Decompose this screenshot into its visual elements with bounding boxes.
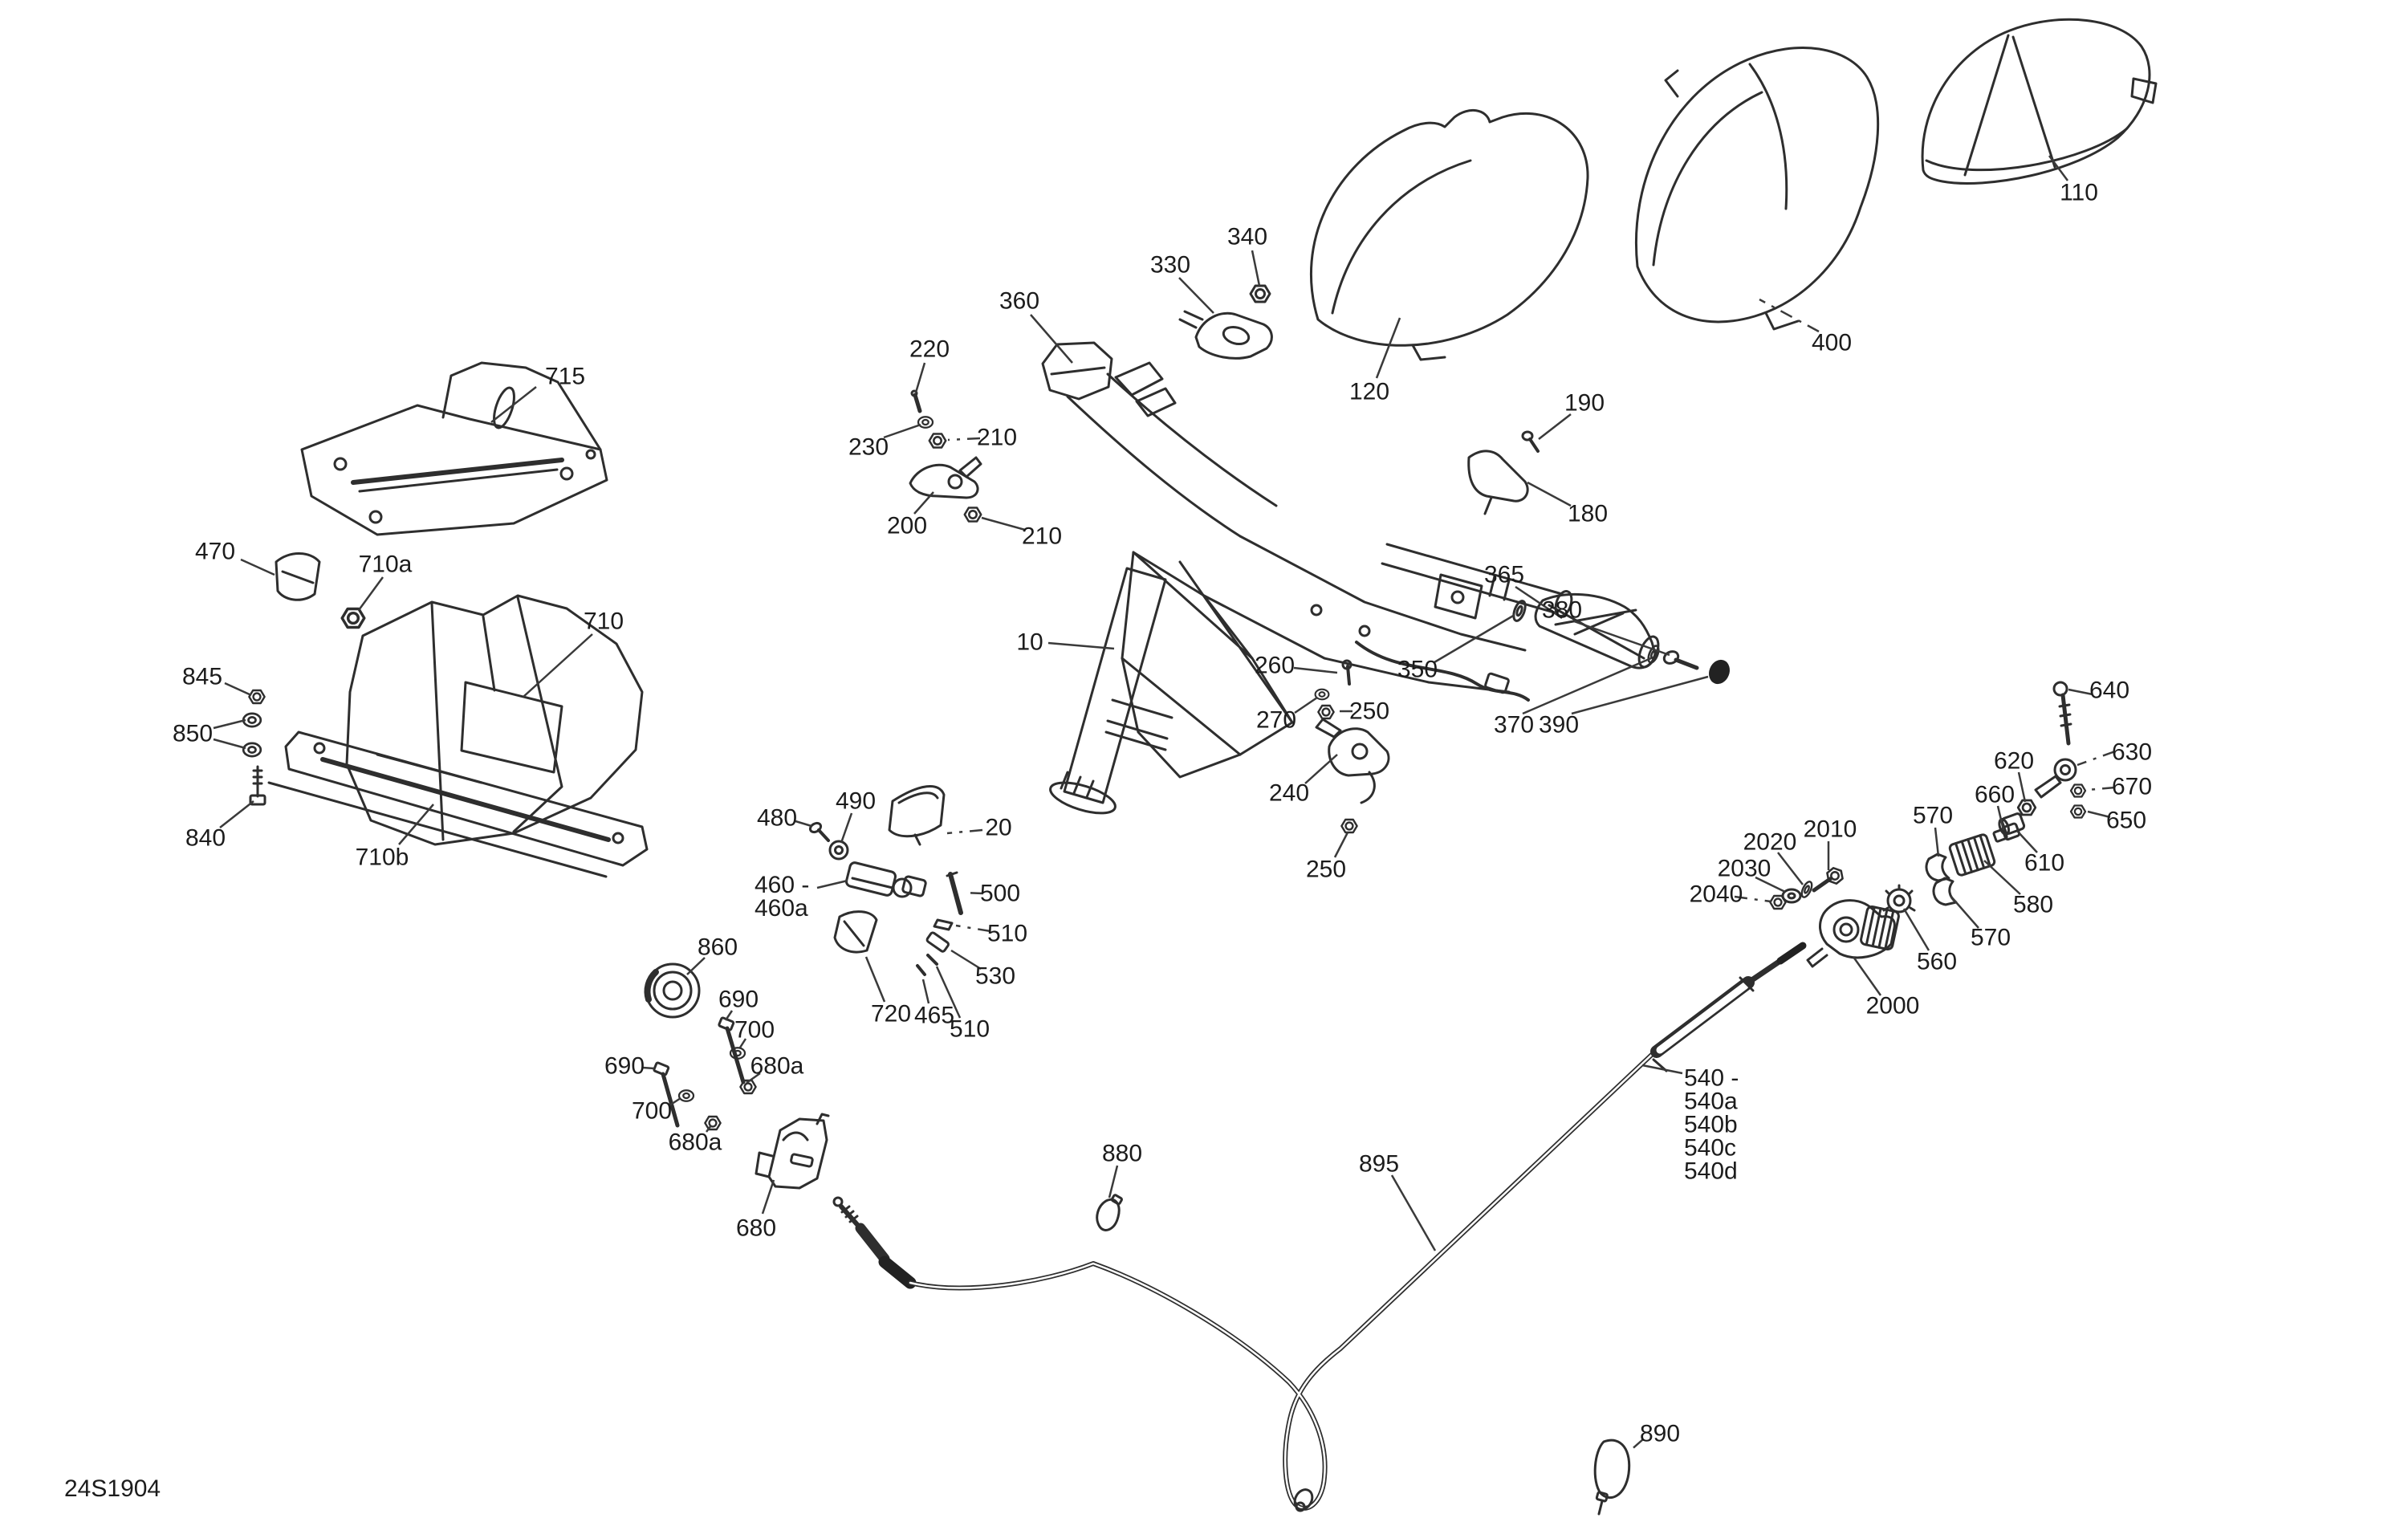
part-callout-710b: 710b: [356, 845, 409, 869]
leader-line-720: [866, 957, 885, 1002]
part-callout-10: 10: [1016, 630, 1043, 653]
part-callout-370: 370: [1494, 713, 1534, 736]
part-callout-670: 670: [2112, 775, 2152, 798]
leader-line-370: [1523, 658, 1651, 714]
throttle-block-sketch: [808, 787, 961, 975]
leader-line-670: [2088, 787, 2115, 790]
part-callout-2020: 2020: [1743, 830, 1797, 853]
leader-line-2000: [1853, 957, 1881, 995]
part-callout-2040: 2040: [1690, 882, 1743, 905]
leader-line-2020: [1778, 853, 1803, 885]
leader-line-250-b: [1335, 832, 1348, 857]
part-callout-560: 560: [1917, 950, 1957, 973]
part-callout-250-a: 250: [1349, 699, 1389, 722]
part-callout-630: 630: [2112, 740, 2152, 763]
cable-ties-sketch: [1097, 1194, 1629, 1514]
leader-line-210-b: [982, 518, 1025, 530]
leader-line-850: [214, 739, 246, 748]
parts-line-art: [243, 19, 2156, 1514]
console-710-sketch: [269, 596, 647, 877]
part-callout-710: 710: [584, 609, 624, 633]
leader-line-240: [1305, 755, 1337, 783]
part-callout-490: 490: [836, 789, 876, 812]
part-callout-2010: 2010: [1804, 817, 1857, 840]
part-callout-530: 530: [975, 964, 1015, 987]
cover-400-sketch: [1636, 48, 1877, 329]
leader-line-840: [220, 801, 254, 828]
part-callout-20: 20: [985, 816, 1011, 839]
leader-line-710a: [359, 577, 383, 610]
deflector-110-sketch: [1922, 19, 2156, 183]
part-callout-330: 330: [1150, 253, 1190, 276]
leader-line-260: [1294, 668, 1337, 673]
part-callout-890: 890: [1640, 1422, 1680, 1445]
leader-line-510-a: [956, 926, 990, 931]
part-callout-460-460a: 460 - 460a: [755, 873, 809, 920]
part-callout-270: 270: [1256, 708, 1296, 731]
switch-330-sketch: [1180, 286, 1271, 358]
leader-line-190: [1539, 414, 1571, 439]
leader-line-465: [923, 979, 929, 1003]
part-callout-570-b: 570: [1971, 926, 2011, 949]
part-callout-350: 350: [1397, 657, 1438, 681]
part-callout-650: 650: [2106, 808, 2146, 832]
part-callout-2000: 2000: [1866, 994, 1920, 1017]
part-callout-660: 660: [1975, 783, 2015, 806]
leader-line-580: [1984, 861, 2020, 894]
part-callout-230: 230: [848, 435, 889, 458]
leader-line-220: [916, 363, 925, 393]
lever-200-sketch: [910, 391, 981, 522]
part-callout-210-a: 210: [977, 425, 1017, 449]
leader-line-620: [2019, 772, 2025, 802]
part-callout-200: 200: [887, 514, 927, 537]
lever-180-sketch: [1469, 432, 1538, 514]
leader-line-570-a: [1935, 828, 1938, 857]
part-callout-850: 850: [173, 722, 213, 745]
part-callout-610: 610: [2024, 851, 2064, 874]
leader-line-845: [225, 683, 251, 695]
leader-line-895: [1392, 1175, 1435, 1251]
part-callout-360: 360: [999, 289, 1039, 312]
part-callout-690-a: 690: [718, 987, 759, 1011]
part-callout-380: 380: [1542, 598, 1582, 621]
part-callout-860: 860: [698, 935, 738, 958]
part-callout-510-a: 510: [987, 922, 1027, 945]
part-callout-680a-b: 680a: [669, 1130, 722, 1154]
part-callout-845: 845: [182, 665, 222, 688]
part-callout-260: 260: [1255, 653, 1295, 677]
part-callout-2030: 2030: [1718, 857, 1771, 880]
leader-line-180: [1527, 482, 1571, 506]
part-callout-540: 540 - 540a 540b 540c 540d: [1684, 1066, 1739, 1182]
leader-line-350: [1434, 615, 1515, 662]
part-callout-895: 895: [1359, 1152, 1399, 1175]
diagram-artwork: [0, 0, 2408, 1526]
leader-line-690-b: [643, 1068, 654, 1068]
leader-line-390: [1572, 677, 1708, 714]
leader-line-850: [214, 720, 246, 728]
lever-240-sketch: [1316, 661, 1389, 832]
leader-line-480: [795, 821, 811, 826]
knob-860-sketch: [646, 964, 699, 1017]
part-callout-190: 190: [1564, 391, 1605, 414]
parts-diagram-page: 715470710a710845850840710b22023021020021…: [0, 0, 2408, 1526]
part-callout-120: 120: [1349, 380, 1389, 403]
cover-120-sketch: [1311, 110, 1588, 360]
leader-line-120: [1377, 318, 1400, 378]
part-callout-640: 640: [2089, 678, 2129, 702]
part-callout-390: 390: [1539, 713, 1579, 736]
part-callout-465: 465: [914, 1003, 954, 1027]
part-callout-110: 110: [2060, 181, 2098, 204]
part-callout-510-b: 510: [950, 1017, 990, 1040]
part-callout-340: 340: [1227, 225, 1267, 248]
leader-line-460-460a: [817, 881, 848, 888]
part-callout-620: 620: [1994, 749, 2034, 772]
part-callout-700-a: 700: [734, 1018, 775, 1041]
leader-line-340: [1252, 250, 1259, 286]
leader-line-570-b: [1950, 896, 1979, 928]
leader-line-490: [841, 813, 852, 843]
part-callout-400: 400: [1812, 331, 1852, 354]
leader-line-230: [884, 425, 921, 437]
leader-line-360: [1031, 315, 1072, 363]
part-callout-250-b: 250: [1306, 857, 1346, 881]
part-callout-570-a: 570: [1913, 804, 1953, 827]
leader-line-20: [947, 830, 982, 833]
part-callout-715: 715: [545, 364, 585, 388]
part-callout-880: 880: [1102, 1141, 1142, 1165]
leader-line-560: [1904, 909, 1929, 950]
part-callout-680: 680: [736, 1216, 776, 1239]
part-callout-680a-a: 680a: [750, 1054, 804, 1077]
document-code: 24S1904: [64, 1475, 161, 1503]
part-callout-480: 480: [757, 806, 797, 829]
part-callout-720: 720: [871, 1002, 911, 1025]
part-callout-690-b: 690: [604, 1054, 645, 1077]
leader-line-210-a: [948, 438, 980, 440]
part-callout-220: 220: [909, 337, 950, 360]
part-callout-710a: 710a: [359, 552, 413, 576]
part-callout-840: 840: [185, 826, 226, 849]
leader-line-630: [2077, 751, 2115, 765]
part-callout-580: 580: [2013, 893, 2053, 916]
leader-line-270: [1295, 698, 1317, 713]
part-callout-240: 240: [1269, 781, 1309, 804]
leader-line-880: [1109, 1166, 1117, 1198]
part-callout-500: 500: [980, 881, 1020, 905]
leader-line-330: [1179, 278, 1214, 313]
part-callout-365: 365: [1484, 563, 1524, 586]
part-callout-700-b: 700: [632, 1099, 672, 1122]
leader-line-680: [763, 1180, 774, 1214]
leader-line-470: [241, 560, 275, 575]
part-callout-180: 180: [1568, 502, 1608, 525]
part-callout-470: 470: [195, 539, 235, 563]
part-callout-210-b: 210: [1022, 524, 1062, 547]
